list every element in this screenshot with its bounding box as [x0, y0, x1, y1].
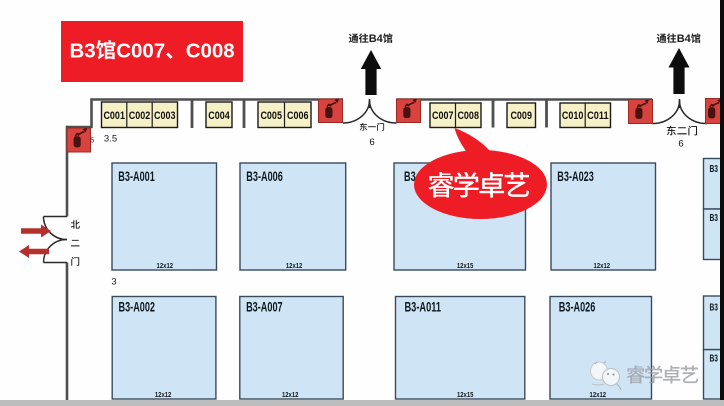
svg-text:12x12: 12x12: [286, 261, 303, 270]
svg-text:C004: C004: [208, 110, 230, 122]
svg-text:3: 3: [111, 277, 116, 288]
svg-text:12x12: 12x12: [594, 261, 611, 270]
svg-text:6: 6: [369, 137, 374, 148]
svg-text:B3-A026: B3-A026: [559, 300, 596, 315]
svg-text:C006: C006: [287, 110, 309, 122]
svg-text:B3: B3: [710, 303, 719, 314]
svg-text:12x12: 12x12: [155, 390, 172, 399]
svg-text:B3: B3: [710, 354, 719, 365]
svg-text:C008: C008: [186, 40, 235, 63]
svg-text:C003: C003: [154, 110, 176, 122]
svg-text:B3: B3: [70, 40, 96, 63]
svg-text:3.5: 3.5: [104, 134, 117, 145]
svg-text:C007: C007: [116, 40, 165, 63]
svg-text:B3-A007: B3-A007: [246, 300, 283, 315]
svg-text:B3: B3: [710, 213, 719, 224]
svg-text:12x12: 12x12: [282, 390, 299, 399]
svg-text:C007: C007: [432, 110, 454, 122]
svg-text:B4: B4: [369, 33, 384, 45]
svg-text:C001: C001: [103, 110, 125, 122]
svg-text:B3-A006: B3-A006: [246, 169, 283, 184]
svg-text:12x15: 12x15: [457, 261, 474, 270]
svg-text:C002: C002: [129, 110, 151, 122]
svg-text:B3-A011: B3-A011: [405, 300, 442, 315]
svg-text:B4: B4: [677, 33, 692, 45]
svg-text:C009: C009: [510, 110, 532, 122]
svg-text:B3-A002: B3-A002: [119, 300, 156, 315]
svg-text:6: 6: [678, 139, 683, 150]
svg-text:C011: C011: [587, 110, 609, 122]
svg-text:B3-A001: B3-A001: [118, 169, 155, 184]
svg-text:12x15: 12x15: [457, 390, 474, 399]
svg-text:C010: C010: [562, 110, 584, 122]
svg-text:C005: C005: [260, 110, 282, 122]
svg-text:B3-A023: B3-A023: [557, 169, 594, 184]
svg-text:B3: B3: [710, 164, 719, 175]
svg-text:C008: C008: [457, 110, 479, 122]
svg-text:12x12: 12x12: [157, 261, 174, 270]
svg-text:12x12: 12x12: [590, 390, 607, 399]
svg-text:5: 5: [90, 137, 94, 144]
